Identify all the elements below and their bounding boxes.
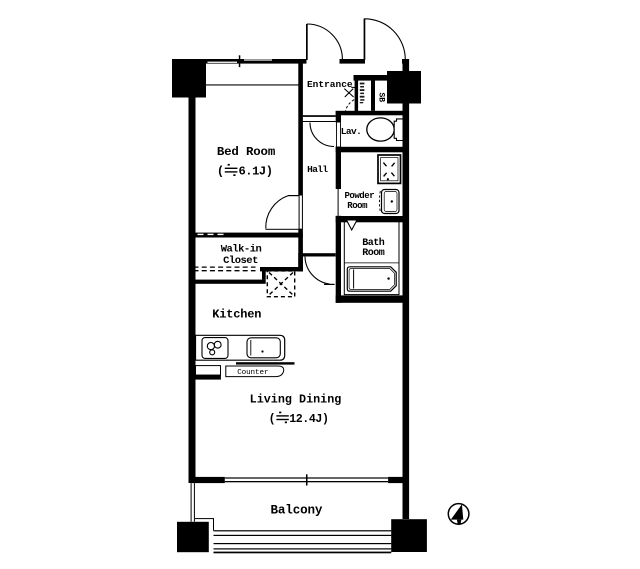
svg-text:Bed Room: Bed Room bbox=[217, 145, 275, 159]
svg-text:Balcony: Balcony bbox=[270, 504, 322, 518]
svg-text:Hall: Hall bbox=[307, 164, 328, 175]
svg-text:(: ( bbox=[217, 165, 224, 179]
svg-text:Lav.: Lav. bbox=[341, 126, 362, 137]
svg-text:Powder: Powder bbox=[344, 191, 374, 201]
svg-text:(: ( bbox=[269, 413, 276, 426]
svg-text:Kitchen: Kitchen bbox=[212, 308, 261, 322]
svg-text:6.1J): 6.1J) bbox=[239, 165, 273, 179]
svg-text:Room: Room bbox=[362, 248, 385, 259]
svg-text:Closet: Closet bbox=[223, 255, 258, 267]
svg-text:Living Dining: Living Dining bbox=[250, 392, 342, 406]
svg-text:Counter: Counter bbox=[237, 369, 268, 377]
svg-text:12.4J): 12.4J) bbox=[289, 413, 328, 426]
svg-text:Walk-in: Walk-in bbox=[221, 244, 262, 256]
svg-text:SB: SB bbox=[376, 92, 385, 102]
svg-text:Entrance: Entrance bbox=[307, 79, 353, 90]
svg-text:Room: Room bbox=[347, 201, 368, 211]
